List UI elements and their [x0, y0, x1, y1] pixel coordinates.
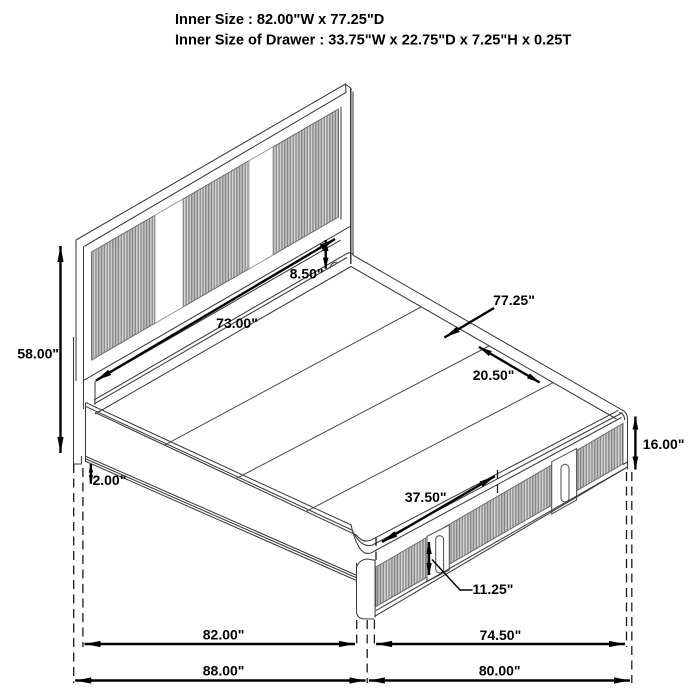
- svg-text:8.50": 8.50": [290, 266, 324, 282]
- svg-text:11.25": 11.25": [473, 581, 514, 597]
- svg-text:Inner Size : 82.00"W x 77.25"D: Inner Size : 82.00"W x 77.25"D: [175, 12, 384, 28]
- svg-text:77.25": 77.25": [493, 292, 535, 308]
- svg-text:37.50": 37.50": [405, 489, 447, 505]
- svg-text:2.00": 2.00": [92, 472, 126, 488]
- svg-text:16.00": 16.00": [643, 436, 685, 452]
- svg-text:20.50": 20.50": [473, 367, 515, 383]
- svg-text:58.00": 58.00": [17, 346, 59, 362]
- svg-text:74.50": 74.50": [480, 627, 522, 643]
- svg-text:Inner Size of Drawer : 33.75"W: Inner Size of Drawer : 33.75"W x 22.75"D…: [175, 32, 571, 48]
- svg-text:88.00": 88.00": [203, 663, 245, 679]
- svg-text:80.00": 80.00": [479, 663, 521, 679]
- svg-text:82.00": 82.00": [203, 627, 245, 643]
- svg-text:73.00": 73.00": [216, 315, 258, 331]
